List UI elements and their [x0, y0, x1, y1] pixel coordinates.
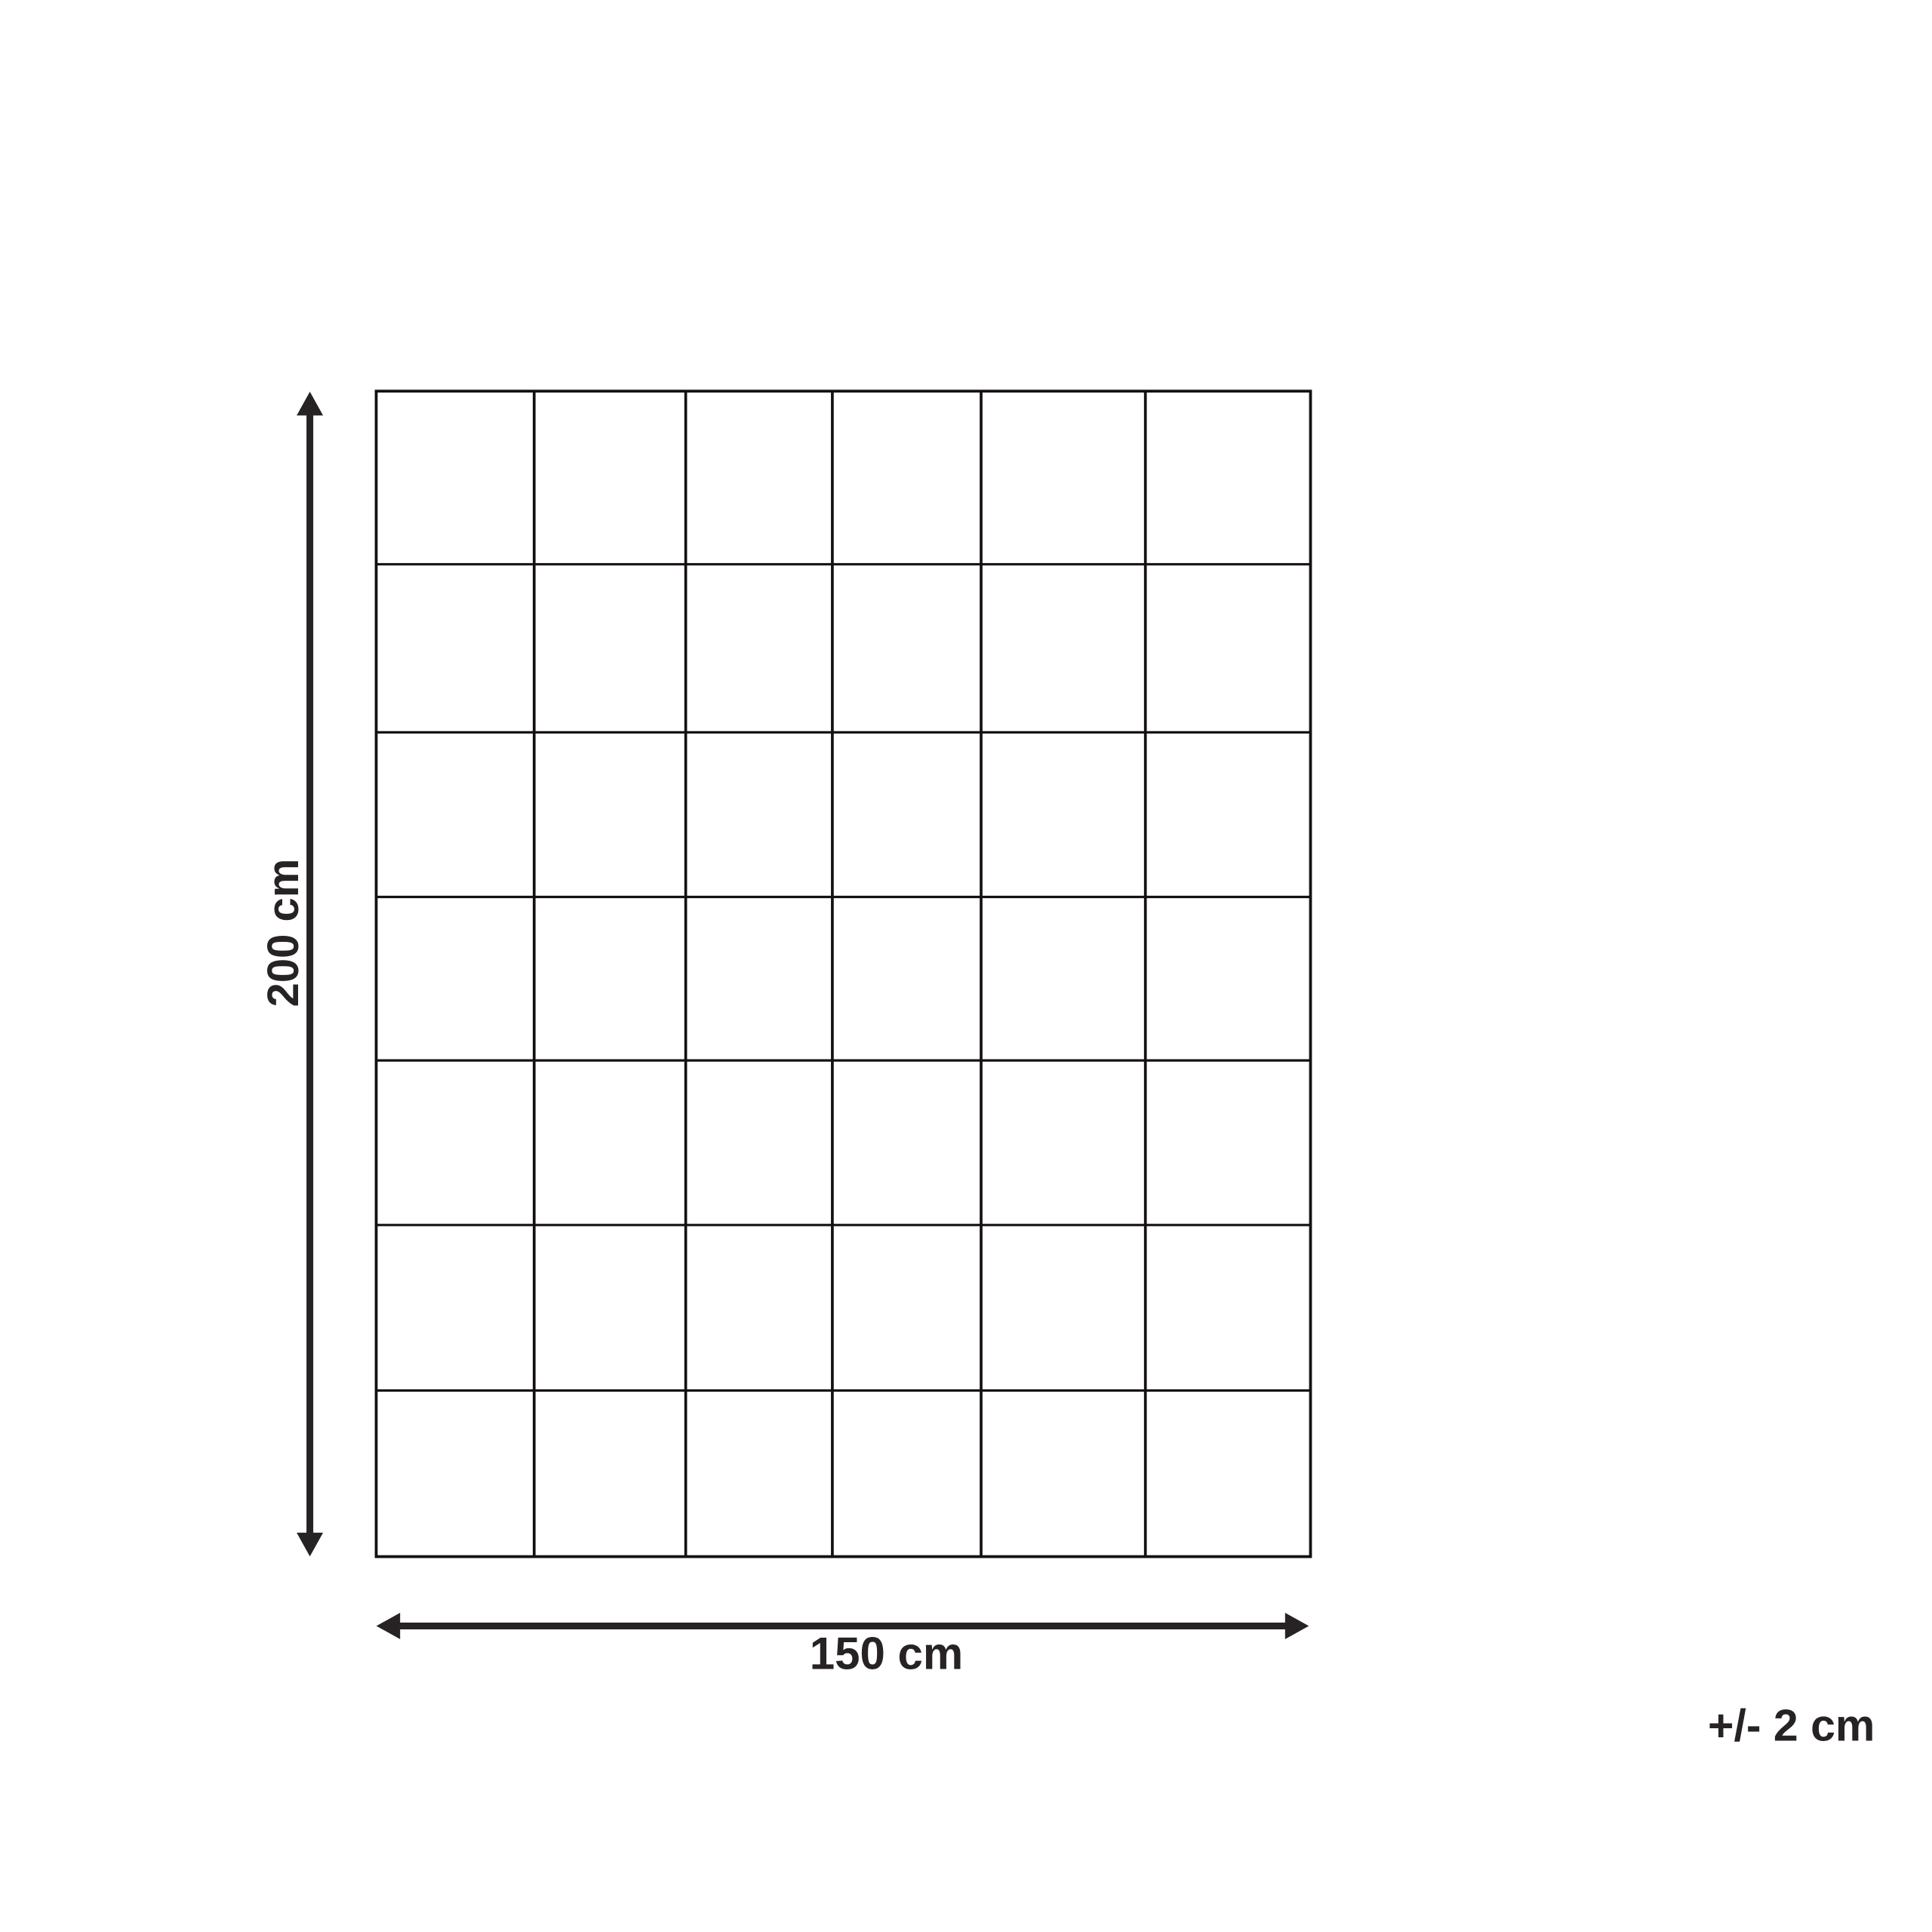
svg-text:200 cm: 200 cm	[259, 859, 308, 1008]
svg-text:150 cm: 150 cm	[810, 1629, 964, 1679]
svg-text:+/- 2 cm: +/- 2 cm	[1708, 1701, 1875, 1751]
